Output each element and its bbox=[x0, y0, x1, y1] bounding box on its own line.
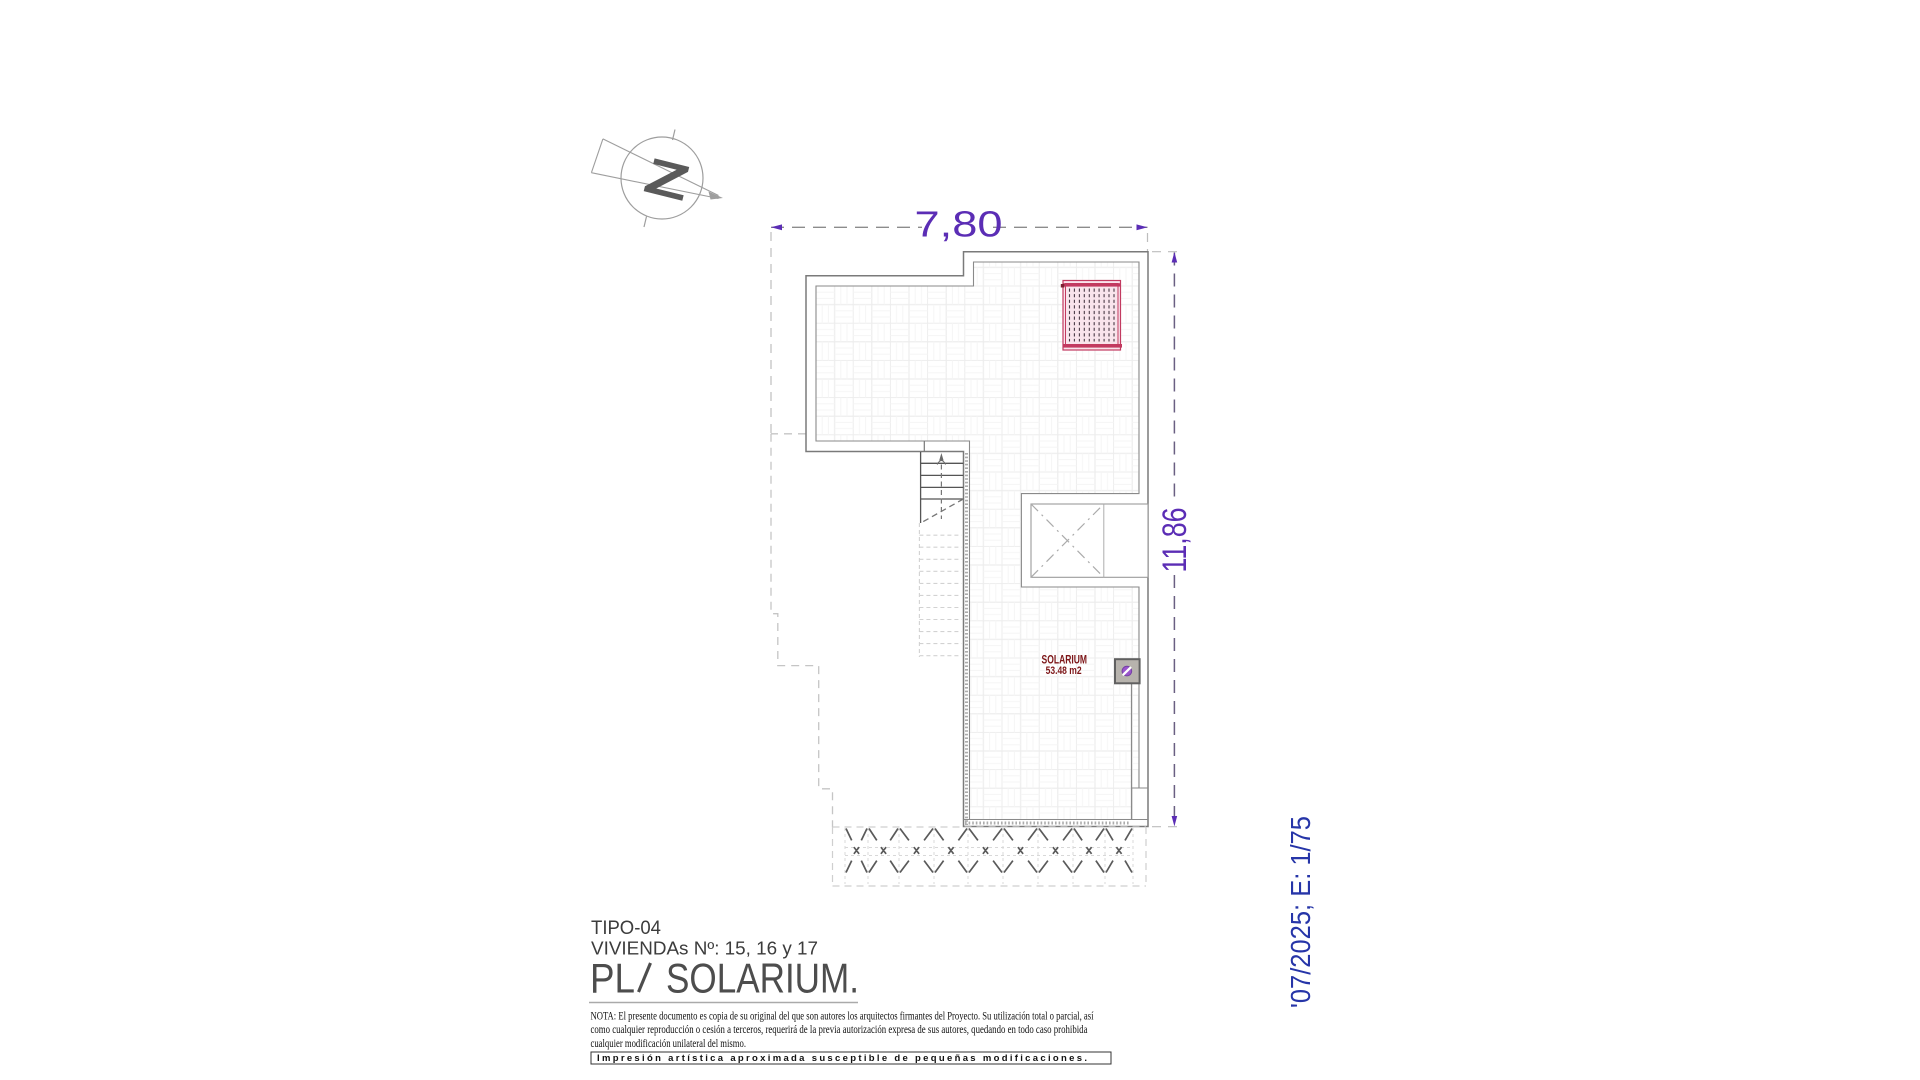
svg-text:TIPO-04: TIPO-04 bbox=[591, 918, 661, 939]
svg-text:7,80: 7,80 bbox=[915, 204, 1003, 245]
svg-text:'07/2025; E: 1/75: '07/2025; E: 1/75 bbox=[1285, 816, 1316, 1008]
svg-text:NOTA: El presente documento es: NOTA: El presente documento es copia de … bbox=[591, 1011, 1095, 1023]
svg-text:53.48 m2: 53.48 m2 bbox=[1046, 665, 1082, 677]
svg-text:SOLARIUM.: SOLARIUM. bbox=[666, 955, 859, 1002]
svg-text:PL: PL bbox=[590, 955, 635, 1002]
svg-text:11,86: 11,86 bbox=[1156, 508, 1194, 573]
svg-text:cualquier modificación unilate: cualquier modificación unilateral del mi… bbox=[591, 1038, 747, 1050]
svg-text:como cualquier reproducción o: como cualquier reproducción o cesión a t… bbox=[591, 1024, 1088, 1036]
